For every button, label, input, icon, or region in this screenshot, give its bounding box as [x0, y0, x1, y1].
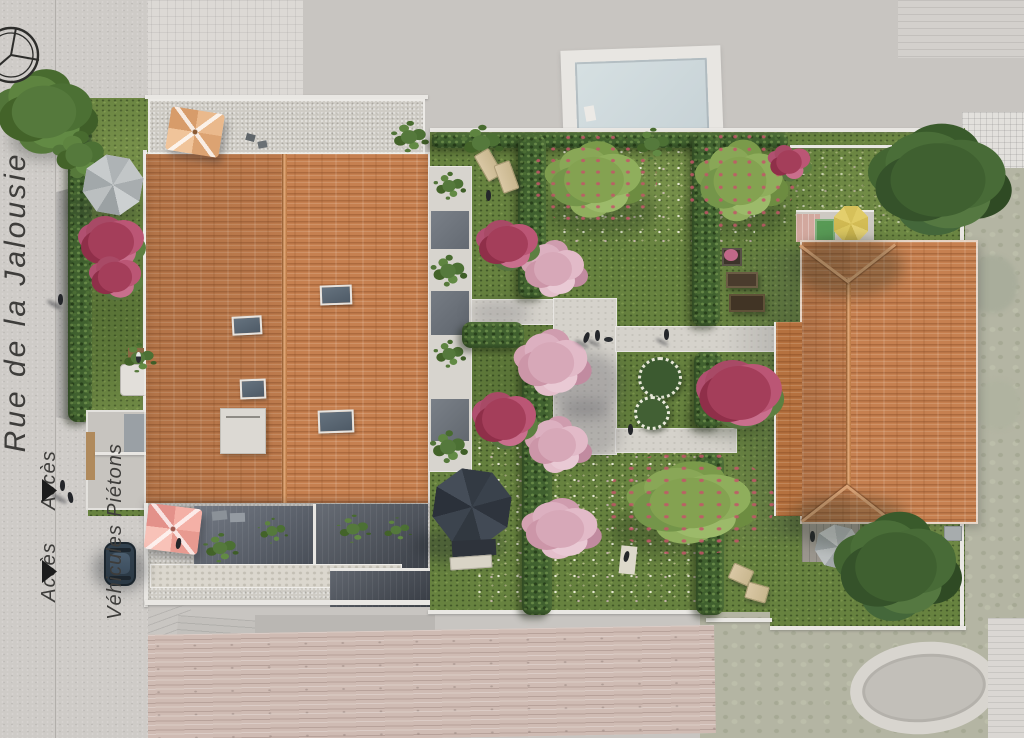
parcel-south-wall — [145, 600, 430, 605]
pedestrian — [664, 329, 669, 340]
south-boundary-wall3 — [770, 626, 966, 630]
vehicle-access-label: Accès Véhicules — [0, 497, 38, 647]
neighbor-tree — [975, 380, 1021, 430]
large-tree-northeast — [891, 143, 986, 217]
roof-skylight — [318, 409, 355, 433]
garden-hedge-elbow — [462, 322, 524, 348]
balcony-plant — [440, 264, 456, 278]
utility-box — [944, 526, 962, 541]
roof-ridge — [846, 278, 851, 488]
terrace-planter-shrub — [401, 130, 417, 144]
north-terrace-wall — [790, 145, 892, 148]
neighbor-roof-top-right — [898, 0, 1024, 58]
planter-flowers — [724, 249, 738, 261]
red-flower-shrub — [776, 150, 802, 174]
planter-box — [722, 248, 742, 266]
red-flower-shrub — [707, 366, 771, 420]
red-flower-shrub — [486, 226, 528, 262]
apple-tree — [650, 478, 731, 529]
red-flower-shrub — [88, 222, 134, 262]
garden-bench — [726, 272, 758, 288]
cherry-tree — [538, 428, 576, 462]
street-corner-tree — [12, 86, 76, 139]
roof-hatch — [220, 408, 266, 454]
courtyard-terrace-b — [316, 504, 428, 568]
south-boundary-wall — [428, 610, 710, 614]
rooftop-parasol-tan — [165, 106, 225, 158]
balcony-plant — [442, 180, 455, 192]
red-flower-shrub — [98, 262, 132, 293]
shrub — [65, 143, 92, 167]
cherry-tree — [534, 252, 572, 286]
courtyard-plant — [346, 524, 359, 535]
courtyard-lounger — [212, 510, 228, 521]
pedestrian — [595, 330, 600, 341]
garden-hedge-west-lower — [522, 348, 552, 615]
balcony-recess — [431, 399, 469, 441]
flower-bed-ring — [638, 357, 682, 399]
roof-hatch-line — [226, 416, 260, 418]
flower-bed-ring — [634, 396, 670, 430]
courtyard-plant — [267, 526, 278, 536]
pedestrian — [136, 352, 141, 363]
neighbor-roof-bottom-right — [988, 618, 1024, 738]
roof-ridge — [282, 154, 287, 510]
roof-skylight — [240, 379, 267, 400]
vehicle-access-line2: Véhicules — [104, 497, 126, 647]
courtyard-plant — [391, 526, 402, 535]
aerial-site-plan-rendering: Rue de la Jalousie Accès Piétons Accès V… — [0, 0, 1024, 738]
shrub — [644, 138, 660, 151]
pedestrian — [58, 294, 63, 305]
cherry-tree — [528, 342, 574, 384]
balcony-recess — [431, 211, 469, 249]
dog — [604, 337, 613, 342]
south-boundary-wall2 — [706, 618, 772, 622]
roof-skylight — [232, 315, 263, 336]
neighbor-pool — [575, 58, 709, 135]
neighbor-roof-bottom-pink — [139, 625, 716, 738]
garden-table-white — [120, 364, 148, 396]
apple-tree — [714, 157, 767, 205]
balcony-plant — [440, 440, 456, 455]
compass-rose-icon — [0, 22, 44, 88]
large-tree-southeast — [855, 532, 937, 602]
pedestrian — [486, 190, 491, 201]
balcony-strip — [428, 166, 472, 472]
red-flower-shrub — [482, 398, 526, 440]
right-residence-wing-roof — [774, 322, 802, 516]
tree-shadow — [796, 238, 902, 296]
courtyard-plant — [213, 542, 227, 554]
balcony-plant — [442, 348, 455, 360]
courtyard-divider-wall — [313, 504, 316, 568]
left-residence-roof — [146, 154, 428, 510]
garden-bench — [729, 294, 765, 312]
north-boundary-wall — [430, 128, 964, 132]
picnic-towel — [619, 545, 638, 575]
roof-skylight — [320, 284, 353, 305]
apple-tree — [564, 157, 624, 203]
courtyard-lounger — [230, 513, 245, 523]
pedestrian — [628, 424, 633, 435]
cherry-tree — [536, 510, 584, 548]
